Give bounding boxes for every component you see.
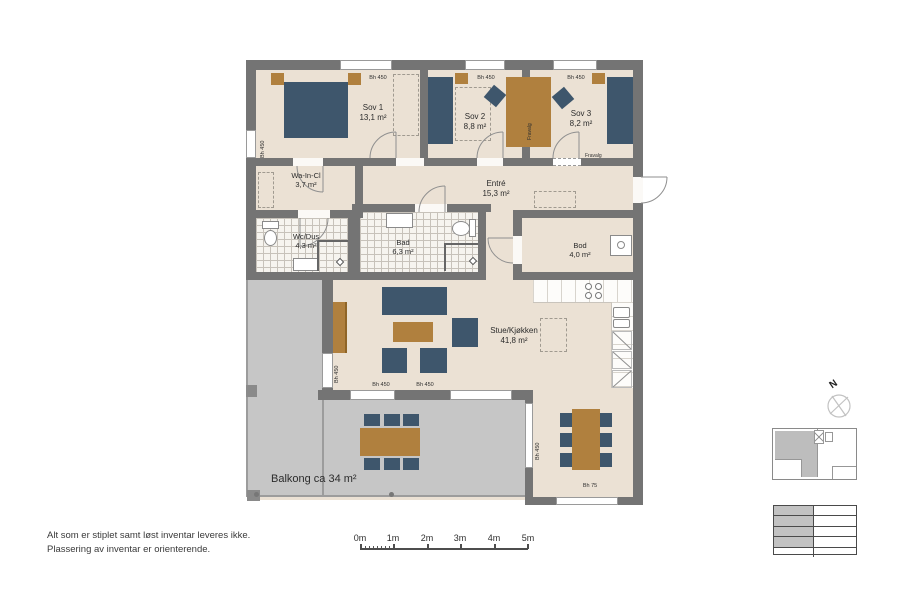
legend-row xyxy=(774,548,856,557)
wall-bad-right xyxy=(478,212,486,280)
window-height-label: Bh 450 xyxy=(335,366,341,383)
key-plan-stair-icon xyxy=(814,430,824,444)
toilet-icon xyxy=(469,219,476,237)
room-name: Bod xyxy=(550,241,610,250)
window-stue-bottom-1 xyxy=(350,390,395,400)
compass-rose xyxy=(828,395,850,417)
dining-chair xyxy=(600,413,612,427)
room-name: Sov 3 xyxy=(551,109,611,119)
kitchen-counter-top xyxy=(533,280,633,303)
option-label-fravalg: Fravalg xyxy=(528,123,533,140)
balcony-chair xyxy=(384,414,400,426)
scale-subdivisions xyxy=(361,546,393,548)
window-height-label: Bh 450 xyxy=(558,76,594,82)
kitchen-sink xyxy=(613,307,630,318)
window-sov3-top xyxy=(553,60,597,70)
door-opening-wcdus xyxy=(298,210,330,218)
nightstand xyxy=(455,73,468,84)
dining-chair xyxy=(560,433,572,447)
window-height-label: Bh 450 xyxy=(360,76,396,82)
scale-label: 1m xyxy=(381,533,405,543)
room-name: Wa-In-Cl xyxy=(270,171,342,180)
window-sov2-top xyxy=(465,60,505,70)
window-stue-bottom-2 xyxy=(450,390,512,400)
scale-line xyxy=(360,548,528,550)
key-plan-unit-highlight xyxy=(801,460,817,477)
scale-label: 5m xyxy=(516,533,540,543)
room-name: Wc/Dus xyxy=(272,232,340,241)
window-height-label: Bh 450 xyxy=(536,443,542,460)
wall-outer-right xyxy=(633,60,643,505)
window-stue-left xyxy=(322,353,333,388)
balcony-chair xyxy=(364,458,380,470)
balcony-chair xyxy=(403,414,419,426)
room-name: Stue/Kjøkken xyxy=(474,326,554,336)
legend-cell xyxy=(774,506,814,515)
scale-label: 4m xyxy=(482,533,506,543)
legend-cell xyxy=(774,527,814,536)
appliance-oven xyxy=(612,351,632,369)
legend-cell xyxy=(814,516,856,525)
nightstand xyxy=(271,73,284,85)
dining-table xyxy=(572,409,600,470)
sofa xyxy=(382,287,447,315)
room-label-sov3: Sov 3 8,2 m² xyxy=(551,109,611,129)
water-heater-icon xyxy=(617,241,625,249)
room-label-bod: Bod 4,0 m² xyxy=(550,241,610,260)
kitchen-sink xyxy=(613,319,630,328)
legend-cell xyxy=(814,537,856,546)
room-name: Bad xyxy=(373,238,433,247)
stove-burner xyxy=(595,283,602,290)
disclaimer-note-line2: Plassering av inventar er orienterende. xyxy=(47,545,210,555)
sink-icon xyxy=(293,258,319,271)
room-area: 41,8 m² xyxy=(474,336,554,346)
balcony-drain xyxy=(254,492,259,497)
key-plan xyxy=(772,428,857,480)
room-label-stue: Stue/Kjøkken 41,8 m² xyxy=(474,326,554,346)
floorplan-canvas: Sov 1 13,1 m² Sov 2 8,8 m² Sov 3 8,2 m² … xyxy=(0,0,900,600)
sink-icon xyxy=(386,213,413,228)
scale-tick xyxy=(494,544,496,549)
window-height-label: Bh 450 xyxy=(367,383,395,389)
toilet-icon xyxy=(452,221,470,236)
dining-chair xyxy=(600,453,612,467)
armchair xyxy=(382,348,407,373)
key-plan-line xyxy=(775,459,802,460)
window-nook-left xyxy=(525,403,533,468)
scale-label: 0m xyxy=(348,533,372,543)
scale-tick xyxy=(460,544,462,549)
scale-label: 2m xyxy=(415,533,439,543)
key-plan-unit-highlight xyxy=(775,431,817,460)
appliance-dishwasher xyxy=(612,331,632,350)
door-opening-entrance xyxy=(633,177,643,203)
room-label-balkong: Balkong ca 34 m² xyxy=(271,473,421,485)
compass-north-label: N xyxy=(827,378,839,391)
bed-sov2 xyxy=(428,77,453,144)
room-label-wcdus: Wc/Dus 4,3 m² xyxy=(272,232,340,251)
room-area: 6,3 m² xyxy=(373,247,433,256)
shower-icon xyxy=(444,243,482,271)
appliance-fridge xyxy=(612,370,632,388)
door-opening-sov3-fravalg xyxy=(553,158,581,166)
coffee-table xyxy=(393,322,433,342)
room-area: 4,0 m² xyxy=(550,250,610,259)
balcony-chair xyxy=(384,458,400,470)
window-height-label: Bh 450 xyxy=(261,141,267,158)
scale-bar: 0m 1m 2m 3m 4m 5m xyxy=(340,530,550,555)
wall-outer-left xyxy=(246,60,256,280)
window-nook-bottom xyxy=(556,497,618,505)
legend-row xyxy=(774,516,856,526)
legend-cell xyxy=(814,527,856,536)
balcony-chair xyxy=(403,458,419,470)
wall-wet-bottom-left xyxy=(246,272,486,280)
key-plan-elevator-icon xyxy=(825,432,833,442)
balcony-chair xyxy=(364,414,380,426)
scale-tick xyxy=(393,544,395,549)
key-plan-line xyxy=(801,459,802,477)
stove-burner xyxy=(595,292,602,299)
key-plan-line xyxy=(832,466,856,467)
window-height-label: Bh 450 xyxy=(468,76,504,82)
tv-bench xyxy=(332,302,347,353)
key-plan-line xyxy=(832,466,833,479)
door-opening-bad xyxy=(415,204,447,212)
balcony-post xyxy=(246,385,257,397)
legend-table xyxy=(773,505,857,555)
room-area: 15,3 m² xyxy=(466,189,526,199)
legend-cell xyxy=(814,506,856,515)
room-area: 3,7 m² xyxy=(270,180,342,189)
wall-bod-top xyxy=(513,210,643,218)
room-label-bad: Bad 6,3 m² xyxy=(373,238,433,257)
dining-chair xyxy=(560,453,572,467)
door-opening-bod xyxy=(513,236,522,264)
door-opening-sov1-entre xyxy=(396,158,424,166)
dining-chair xyxy=(560,413,572,427)
room-name: Sov 1 xyxy=(343,103,403,113)
dining-chair xyxy=(600,433,612,447)
stove-burner xyxy=(585,292,592,299)
window-sov1-top xyxy=(340,60,392,70)
room-name: Sov 2 xyxy=(445,112,505,122)
legend-row xyxy=(774,537,856,547)
balcony-railing-bottom xyxy=(246,495,526,497)
room-label-entre: Entré 15,3 m² xyxy=(466,179,526,199)
compass-needle xyxy=(832,396,846,416)
disclaimer-note-line1: Alt som er stiplet samt løst inventar le… xyxy=(47,531,250,541)
room-area: 13,1 m² xyxy=(343,113,403,123)
room-label-waincl: Wa-In-Cl 3,7 m² xyxy=(270,171,342,190)
toilet-icon xyxy=(262,221,279,229)
legend-cell xyxy=(774,548,814,557)
stove-burner xyxy=(585,283,592,290)
room-label-sov2: Sov 2 8,8 m² xyxy=(445,112,505,132)
balcony-table xyxy=(360,428,420,456)
bed-sov1 xyxy=(284,82,348,138)
room-name: Entré xyxy=(466,179,526,189)
room-area: 8,8 m² xyxy=(445,122,505,132)
scale-tick xyxy=(427,544,429,549)
door-opening-sov1-waincl xyxy=(293,158,323,166)
compass-cross xyxy=(830,397,848,414)
scale-tick xyxy=(527,544,529,549)
window-sov1-left xyxy=(246,130,256,158)
wardrobe-dashed-entre xyxy=(534,191,576,208)
scale-tick xyxy=(360,544,362,549)
legend-cell xyxy=(774,516,814,525)
door-opening-sov2 xyxy=(477,158,503,166)
room-area: 8,2 m² xyxy=(551,119,611,129)
window-height-label: Bh 75 xyxy=(575,484,605,490)
entrance-door-arc xyxy=(641,177,667,203)
balcony-drain xyxy=(389,492,394,497)
wall-sov1-right xyxy=(420,70,428,158)
legend-row xyxy=(774,527,856,537)
wall-wcdus-bad xyxy=(348,218,360,272)
legend-cell xyxy=(774,537,814,546)
legend-row xyxy=(774,506,856,516)
room-area: 4,3 m² xyxy=(272,241,340,250)
window-height-label: Bh 450 xyxy=(411,383,439,389)
compass-circle xyxy=(828,395,850,417)
armchair xyxy=(420,348,447,373)
balcony-left xyxy=(246,280,322,497)
scale-label: 3m xyxy=(448,533,472,543)
room-label-sov1: Sov 1 13,1 m² xyxy=(343,103,403,123)
wall-wet-bottom-right xyxy=(513,272,643,280)
legend-cell xyxy=(814,548,856,557)
option-label-fravalg: Fravalg xyxy=(585,154,613,159)
